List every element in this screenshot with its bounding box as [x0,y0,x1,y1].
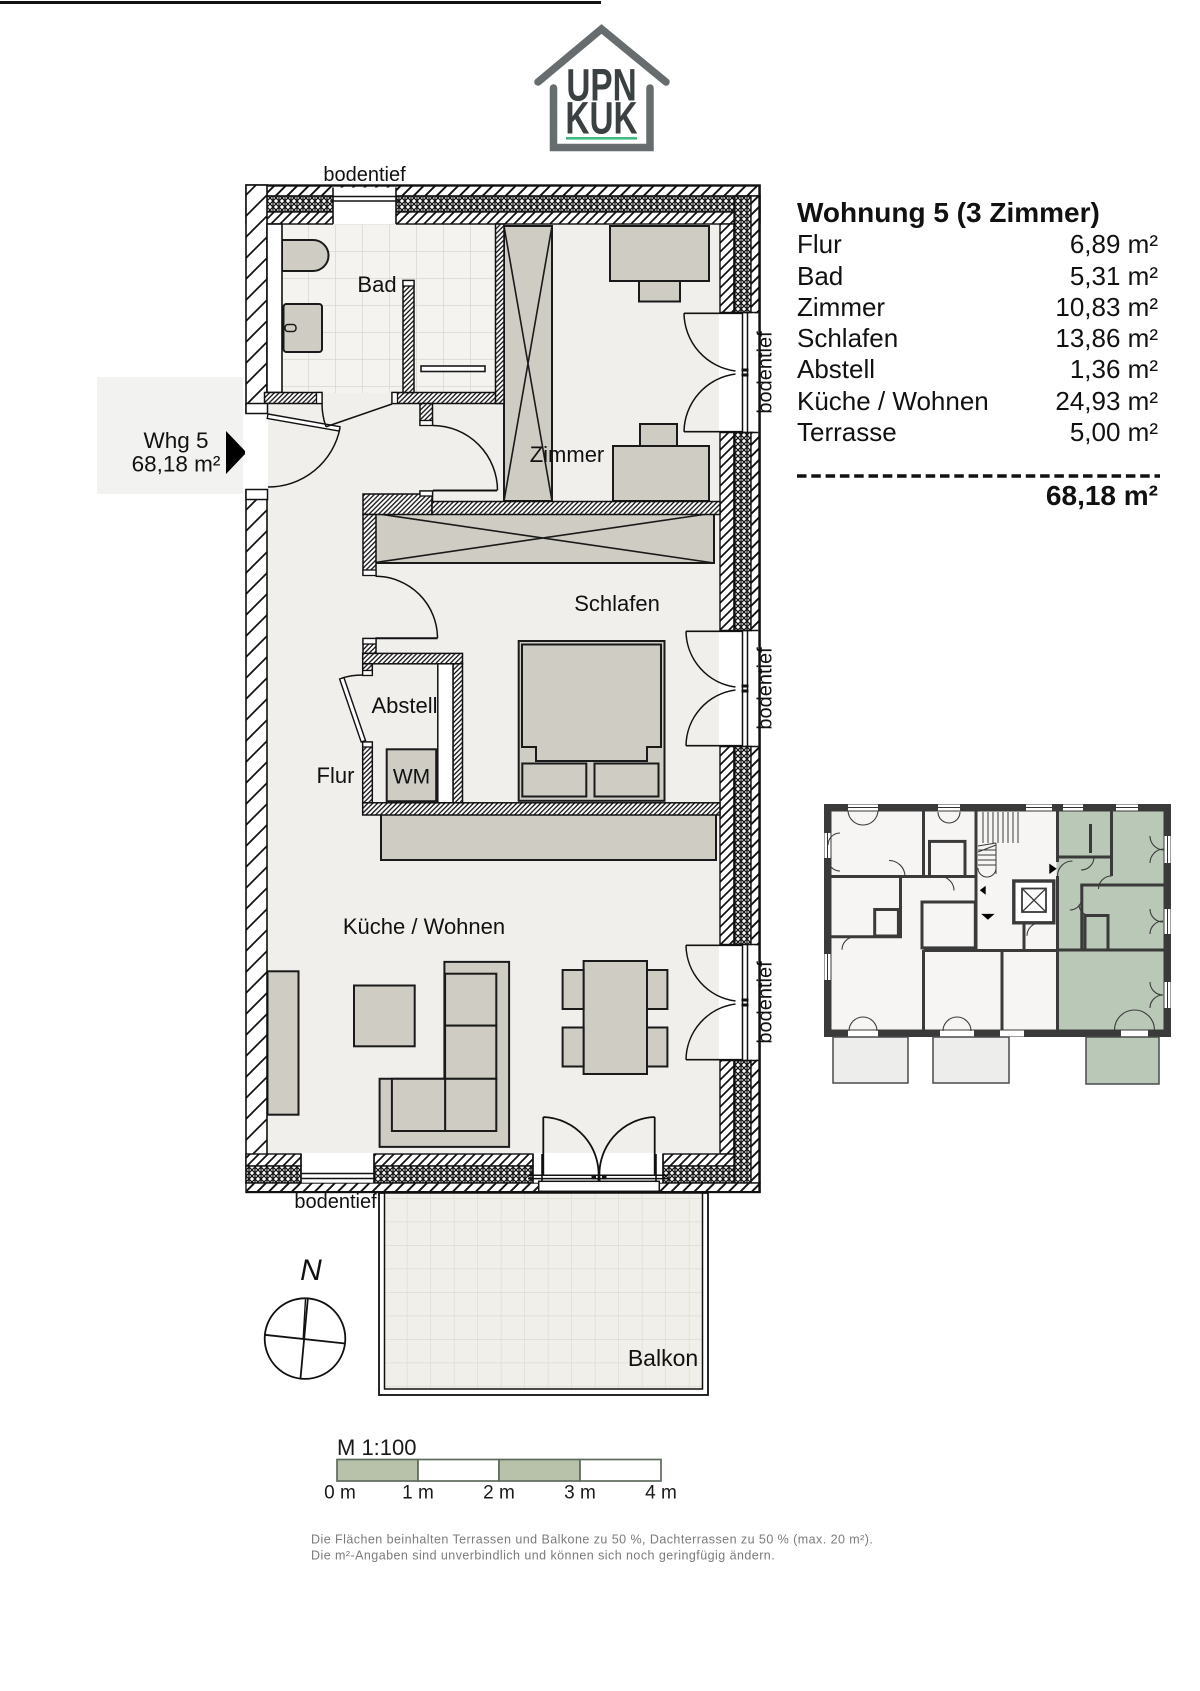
svg-text:Die m²-Angaben sind unverbindl: Die m²-Angaben sind unverbindlich und kö… [311,1549,775,1563]
svg-text:4 m: 4 m [645,1483,677,1504]
svg-text:1,36 m²: 1,36 m² [1070,354,1158,384]
svg-text:bodentief: bodentief [294,1191,377,1213]
svg-text:68,18 m²: 68,18 m² [132,452,221,477]
svg-text:N: N [300,1254,322,1287]
svg-text:0 m: 0 m [324,1483,356,1504]
svg-text:Wohnung 5 (3 Zimmer): Wohnung 5 (3 Zimmer) [797,197,1100,228]
svg-text:Die Flächen beinhalten Terrass: Die Flächen beinhalten Terrassen und Bal… [311,1533,873,1547]
svg-text:WM: WM [393,766,430,789]
svg-text:13,86 m²: 13,86 m² [1055,323,1158,353]
svg-text:Küche / Wohnen: Küche / Wohnen [343,914,505,939]
svg-text:2 m: 2 m [483,1483,515,1504]
svg-text:68,18 m²: 68,18 m² [1046,480,1158,511]
svg-text:5,00 m²: 5,00 m² [1070,417,1158,447]
svg-text:6,89 m²: 6,89 m² [1070,229,1158,259]
svg-text:Abstell: Abstell [797,354,875,384]
svg-text:Flur: Flur [317,763,355,788]
svg-text:Flur: Flur [797,229,842,259]
svg-text:bodentief: bodentief [755,331,777,414]
svg-text:Bad: Bad [357,272,396,297]
svg-text:Terrasse: Terrasse [797,417,897,447]
svg-text:Bad: Bad [797,261,843,291]
svg-text:Balkon: Balkon [628,1345,698,1371]
svg-text:M 1:100: M 1:100 [337,1435,417,1460]
svg-text:Zimmer: Zimmer [797,292,885,322]
svg-text:Abstell: Abstell [371,693,437,718]
svg-text:KUK: KUK [565,94,637,144]
svg-text:Schlafen: Schlafen [574,591,660,616]
svg-text:5,31 m²: 5,31 m² [1070,261,1158,291]
svg-text:bodentief: bodentief [755,961,777,1044]
svg-text:bodentief: bodentief [755,647,777,730]
svg-text:Zimmer: Zimmer [530,442,605,467]
svg-text:24,93 m²: 24,93 m² [1055,386,1158,416]
svg-text:10,83 m²: 10,83 m² [1055,292,1158,322]
svg-text:1 m: 1 m [402,1483,434,1504]
svg-text:Schlafen: Schlafen [797,323,898,353]
svg-text:Küche / Wohnen: Küche / Wohnen [797,386,989,416]
svg-text:3 m: 3 m [564,1483,596,1504]
svg-text:bodentief: bodentief [323,164,406,186]
svg-text:Whg 5: Whg 5 [143,428,208,453]
